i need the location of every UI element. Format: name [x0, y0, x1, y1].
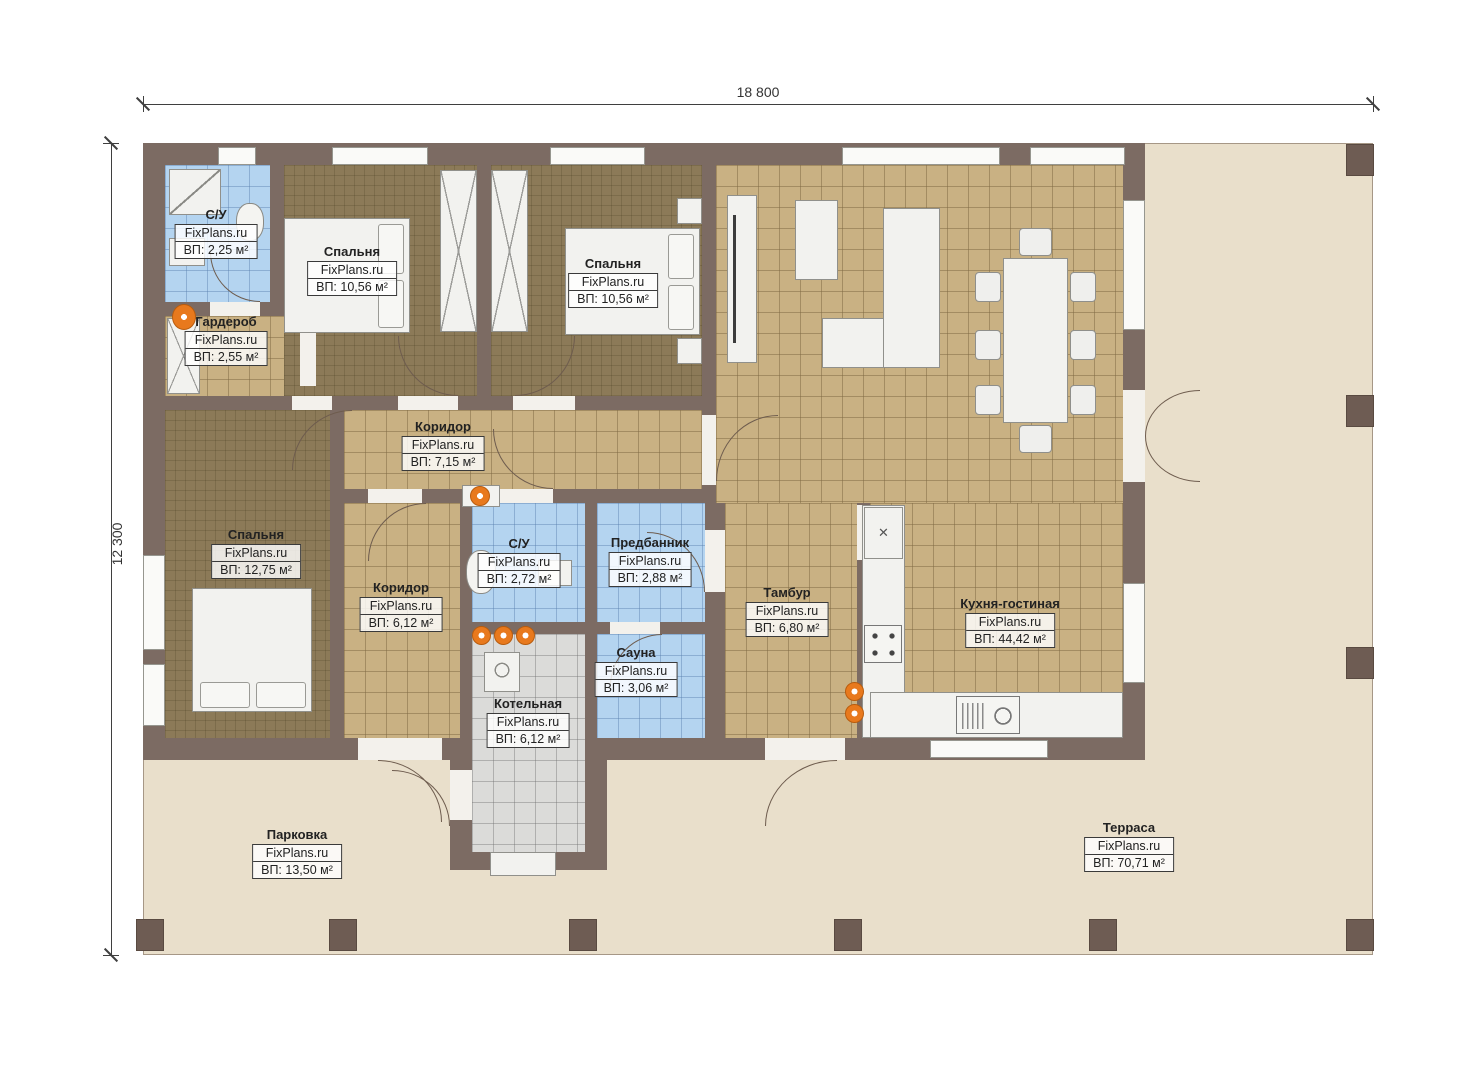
door-opening-wardrobe [300, 330, 316, 386]
watermark: FixPlans.ru [610, 553, 691, 570]
room-label-bedroom1: Спальня FixPlans.ru ВП: 10,56 м² [307, 244, 397, 296]
column [570, 920, 596, 950]
chair [975, 272, 1001, 302]
nightstand [677, 198, 702, 224]
tv-console [727, 195, 757, 363]
door-opening-exit-left [358, 738, 442, 760]
door-opening-terrace [1123, 390, 1145, 482]
column [835, 920, 861, 950]
room-label-parking: Парковка FixPlans.ru ВП: 13,50 м² [252, 827, 342, 879]
room-name: Коридор [360, 580, 443, 595]
room-name: Предбанник [609, 535, 692, 550]
room-area: ВП: 13,50 м² [253, 862, 341, 878]
radiator-icon [472, 626, 491, 645]
room-area: ВП: 6,12 м² [361, 615, 442, 631]
room-label-predbannik: Предбанник FixPlans.ru ВП: 2,88 м² [609, 535, 692, 587]
room-area: ВП: 6,12 м² [488, 731, 569, 747]
window [1123, 583, 1145, 683]
room-area: ВП: 6,80 м² [747, 620, 828, 636]
door-opening-bedroom3 [292, 396, 332, 410]
room-label-kitchen: Кухня-гостиная FixPlans.ru ВП: 44,42 м² [960, 596, 1060, 648]
room-label-su1: С/У FixPlans.ru ВП: 2,25 м² [175, 207, 258, 259]
room-name: Тамбур [746, 585, 829, 600]
watermark: FixPlans.ru [747, 603, 828, 620]
chair [1070, 330, 1096, 360]
room-label-corridor2: Коридор FixPlans.ru ВП: 6,12 м² [360, 580, 443, 632]
room-name: Спальня [211, 527, 301, 542]
window [1123, 200, 1145, 330]
room-name: Сауна [595, 645, 678, 660]
door-opening-corridor2 [368, 489, 422, 503]
radiator-icon [516, 626, 535, 645]
watermark: FixPlans.ru [966, 614, 1054, 631]
window [930, 740, 1048, 758]
chair [1070, 385, 1096, 415]
room-area: ВП: 3,06 м² [596, 680, 677, 696]
sofa-chaise [822, 318, 884, 368]
room-area: ВП: 2,88 м² [610, 570, 691, 586]
chair [975, 385, 1001, 415]
room-name: С/У [175, 207, 258, 222]
window [1030, 147, 1125, 165]
column [1347, 648, 1373, 678]
room-label-wardrobe: Гардероб FixPlans.ru ВП: 2,55 м² [185, 314, 268, 366]
chair [975, 330, 1001, 360]
room-name: Кухня-гостиная [960, 596, 1060, 611]
room-area: ВП: 70,71 м² [1085, 855, 1173, 871]
appliance-cross-icon: ✕ [878, 525, 889, 541]
chair [1019, 228, 1052, 256]
door-opening-predbannik [705, 530, 725, 592]
stoop [490, 852, 556, 876]
door-opening-bedroom1 [398, 396, 458, 410]
room-label-terrace: Терраса FixPlans.ru ВП: 70,71 м² [1084, 820, 1174, 872]
pillow [200, 682, 250, 708]
chair [1070, 272, 1096, 302]
radiator-icon [494, 626, 513, 645]
room-area: ВП: 7,15 м² [403, 454, 484, 470]
door-opening-su2 [493, 489, 553, 503]
room-name: С/У [478, 536, 561, 551]
watermark: FixPlans.ru [488, 714, 569, 731]
watermark: FixPlans.ru [253, 845, 341, 862]
window [143, 555, 165, 650]
nightstand [677, 338, 702, 364]
window [218, 147, 256, 165]
room-name: Гардероб [185, 314, 268, 329]
room-name: Котельная [487, 696, 570, 711]
radiator-icon [470, 486, 490, 506]
watermark: FixPlans.ru [479, 554, 560, 571]
radiator-icon [845, 682, 864, 701]
wardrobe-x [440, 170, 477, 332]
door-opening-living [702, 415, 716, 485]
column [1347, 145, 1373, 175]
coffee-table [795, 200, 838, 280]
door-opening-entrance [765, 738, 845, 760]
room-area: ВП: 44,42 м² [966, 631, 1054, 647]
room-area: ВП: 2,25 м² [176, 242, 257, 258]
room-label-su2: С/У FixPlans.ru ВП: 2,72 м² [478, 536, 561, 588]
dimension-width-label: 18 800 [698, 84, 818, 100]
window [332, 147, 428, 165]
door-opening-sauna [610, 622, 660, 634]
watermark: FixPlans.ru [186, 332, 267, 349]
watermark: FixPlans.ru [403, 437, 484, 454]
pillow [256, 682, 306, 708]
room-label-corridor1: Коридор FixPlans.ru ВП: 7,15 м² [402, 419, 485, 471]
dimension-line-top [143, 104, 1373, 105]
watermark: FixPlans.ru [212, 545, 300, 562]
watermark: FixPlans.ru [569, 274, 657, 291]
door-opening-boiler [450, 770, 472, 820]
room-label-bedroom2: Спальня FixPlans.ru ВП: 10,56 м² [568, 256, 658, 308]
column [1347, 396, 1373, 426]
window [842, 147, 1000, 165]
boiler-unit-icon [484, 652, 520, 692]
room-name: Спальня [568, 256, 658, 271]
dimension-height-label: 12 300 [109, 499, 125, 589]
column [1090, 920, 1116, 950]
sofa [883, 208, 940, 368]
tv-icon [733, 215, 736, 343]
room-label-bedroom3: Спальня FixPlans.ru ВП: 12,75 м² [211, 527, 301, 579]
room-label-boiler: Котельная FixPlans.ru ВП: 6,12 м² [487, 696, 570, 748]
watermark: FixPlans.ru [361, 598, 442, 615]
column [330, 920, 356, 950]
wardrobe-x [491, 170, 528, 332]
room-name: Спальня [307, 244, 397, 259]
watermark: FixPlans.ru [1085, 838, 1173, 855]
room-area: ВП: 2,72 м² [479, 571, 560, 587]
window [143, 664, 165, 726]
room-name: Коридор [402, 419, 485, 434]
watermark: FixPlans.ru [308, 262, 396, 279]
pillow [668, 234, 694, 279]
room-area: ВП: 2,55 м² [186, 349, 267, 365]
room-name: Терраса [1084, 820, 1174, 835]
room-name: Парковка [252, 827, 342, 842]
door-opening-bedroom2 [513, 396, 575, 410]
floor-plan-canvas: 18 800 12 300 [0, 0, 1474, 1080]
room-area: ВП: 10,56 м² [308, 279, 396, 295]
dining-table [1003, 258, 1068, 423]
room-label-sauna: Сауна FixPlans.ru ВП: 3,06 м² [595, 645, 678, 697]
room-area: ВП: 12,75 м² [212, 562, 300, 578]
radiator-icon [845, 704, 864, 723]
column [1347, 920, 1373, 950]
room-label-tambur: Тамбур FixPlans.ru ВП: 6,80 м² [746, 585, 829, 637]
chair [1019, 425, 1052, 453]
pillow [668, 285, 694, 330]
stove-icon [864, 625, 902, 663]
fridge-icon: ✕ [864, 507, 903, 559]
kitchen-sink-icon [956, 696, 1020, 734]
watermark: FixPlans.ru [176, 225, 257, 242]
column [137, 920, 163, 950]
room-area: ВП: 10,56 м² [569, 291, 657, 307]
watermark: FixPlans.ru [596, 663, 677, 680]
window [550, 147, 645, 165]
